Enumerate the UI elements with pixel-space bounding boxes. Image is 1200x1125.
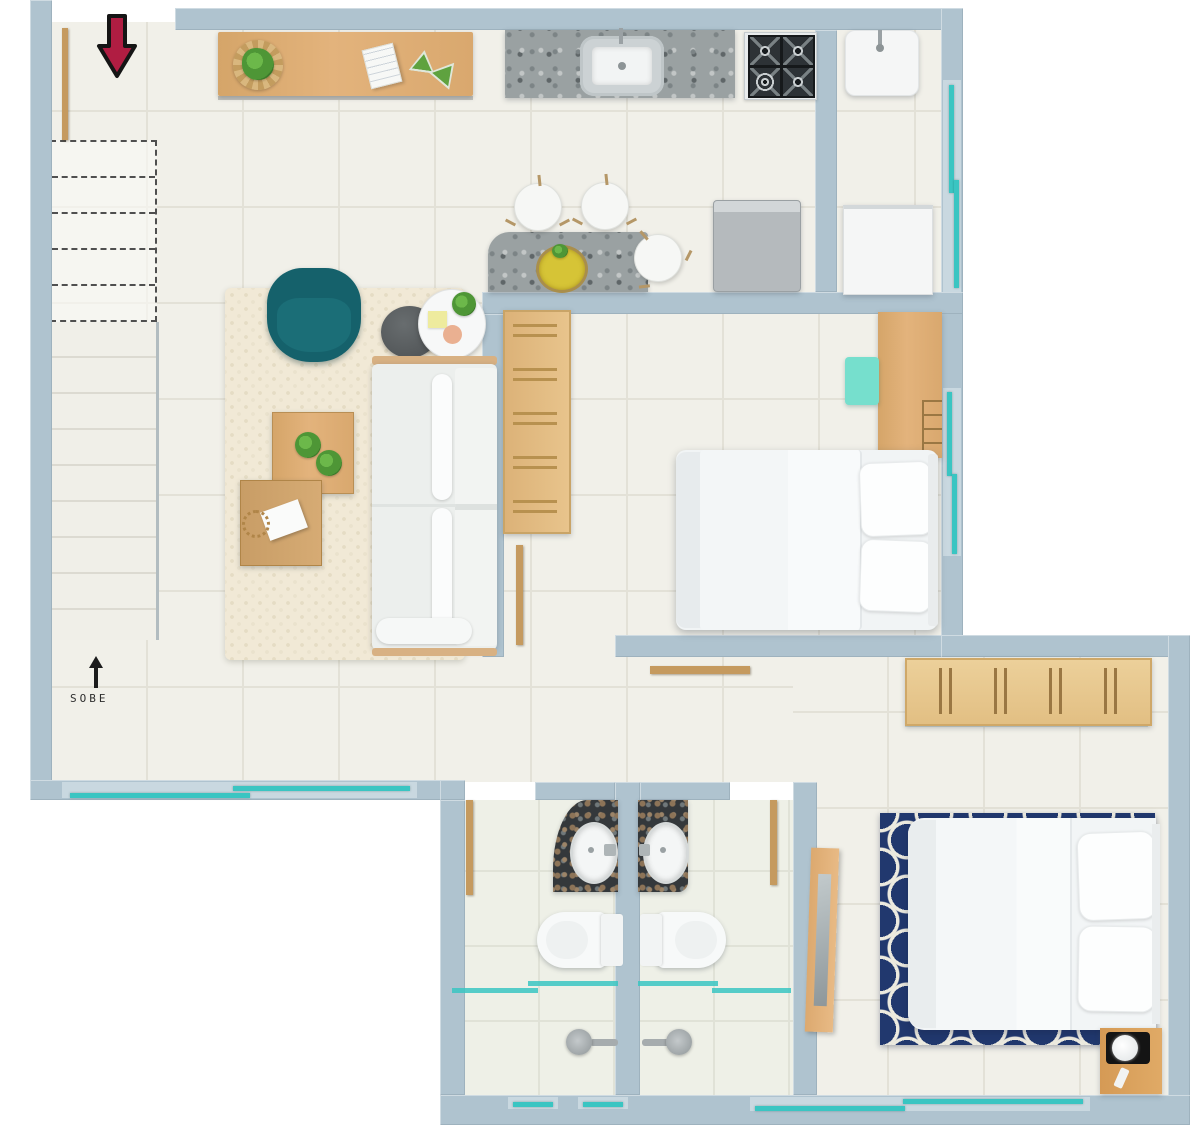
kitchen-sink — [580, 36, 664, 96]
window-living-2 — [70, 793, 250, 798]
window-bedroom1-2 — [952, 474, 957, 554]
bedroom1-door-leaf — [516, 545, 523, 645]
remote — [1113, 1067, 1129, 1089]
lamp — [1112, 1035, 1138, 1061]
sticky-note — [428, 311, 447, 328]
wall-bath2-top — [640, 782, 730, 800]
bed1-headboard — [928, 454, 938, 626]
coffee-plant-2 — [316, 450, 342, 476]
burner — [748, 35, 782, 67]
washing-machine — [843, 205, 933, 295]
window-laundry — [949, 85, 954, 193]
sink-drain — [618, 62, 626, 70]
burner — [748, 66, 782, 98]
stairs-up-label: SOBE — [70, 692, 109, 705]
bath2-vanity — [638, 800, 688, 892]
bathroom2-door-leaf — [770, 800, 777, 885]
rack-slats — [513, 324, 557, 518]
bath1-shower-arm — [590, 1039, 618, 1046]
slatted-rack — [503, 310, 571, 534]
bath2-shower-arm — [642, 1039, 669, 1046]
wall-left — [30, 0, 52, 800]
bowl-greens — [552, 244, 568, 258]
sofa-wood-trim-bottom — [372, 648, 497, 656]
side-table-plant — [452, 292, 476, 316]
toilet-tank — [640, 914, 662, 966]
bed1-pillow-2 — [859, 539, 933, 613]
bath2-toilet — [640, 912, 726, 968]
wall-bath-top-corner — [440, 780, 465, 800]
desk-cube-shelves — [922, 400, 942, 456]
window-bedroom2 — [903, 1099, 1083, 1104]
window-bedroom2-2 — [755, 1106, 905, 1111]
bath1-shower-glass-2 — [452, 988, 538, 993]
stairs-upper-flight-dashed — [50, 140, 157, 322]
bath1-toilet — [537, 912, 623, 968]
bath2-shower-head — [666, 1029, 692, 1055]
armchair — [267, 268, 361, 362]
bed2-pillow-2 — [1077, 925, 1156, 1012]
fruit-bowl — [536, 245, 588, 293]
bed2-foot-roll — [908, 820, 938, 1028]
bed2-duvet — [936, 818, 1072, 1030]
refrigerator — [713, 200, 801, 292]
plant-leaves — [242, 48, 274, 80]
dining-chair-1 — [514, 183, 562, 231]
wardrobe — [905, 658, 1152, 726]
burner — [781, 66, 815, 98]
desk-chair — [845, 357, 879, 405]
coffee-plant-1 — [295, 432, 321, 458]
sofa — [372, 356, 497, 656]
wall-kitchen-laundry — [815, 30, 837, 292]
kitchen-faucet — [619, 28, 623, 44]
stair-tread-line — [52, 176, 155, 178]
toilet-tank — [601, 914, 623, 966]
window-bath1 — [513, 1102, 553, 1107]
window-bath2 — [583, 1102, 623, 1107]
bath1-drain — [588, 847, 594, 853]
bath2-shower-glass-2 — [712, 988, 791, 993]
basket-plant — [233, 40, 283, 90]
bed1-foot-roll — [676, 452, 702, 628]
bed-2 — [908, 818, 1160, 1030]
entry-arrow-icon — [95, 12, 139, 82]
dining-chair-2 — [581, 182, 629, 230]
peach-dish — [443, 325, 462, 344]
sofa-bolster-1 — [432, 374, 452, 500]
bath1-shower-head — [566, 1029, 592, 1055]
bath2-drain — [660, 847, 666, 853]
wall-top — [175, 8, 963, 30]
bath1-shower-glass — [528, 981, 618, 986]
bed1-pillow-1 — [859, 461, 934, 537]
floor-plan: SOBE — [0, 0, 1200, 1125]
toilet-seat — [675, 921, 717, 959]
sideboard-shadow — [218, 96, 473, 100]
wall-bath1-top — [535, 782, 615, 800]
stair-tread-line — [52, 248, 155, 250]
stair-tread-line — [52, 284, 155, 286]
window-laundry-2 — [954, 180, 959, 288]
sofa-bolster-2 — [432, 508, 452, 634]
bath2-faucet — [639, 844, 650, 856]
bed1-duvet — [700, 450, 862, 630]
bed2-pillow-1 — [1076, 831, 1157, 922]
hallway-door-leaf — [650, 666, 750, 674]
laundry-tank — [845, 30, 919, 96]
wall-bedroom2-top — [941, 635, 1190, 657]
wall-bedroom2-right — [1168, 635, 1190, 1125]
wall-bedroom1-bottom — [615, 635, 963, 657]
bed2-headboard — [1152, 824, 1160, 1024]
sofa-backrest — [455, 368, 497, 646]
window-bedroom1 — [947, 392, 952, 476]
armchair-seat — [277, 298, 351, 352]
mirror-glass — [814, 874, 832, 1006]
bathroom1-door-leaf — [466, 800, 473, 895]
sofa-seat-split — [372, 504, 456, 507]
stair-tread-line — [52, 212, 155, 214]
bath2-shower-glass — [638, 981, 718, 986]
bath1-faucet — [604, 844, 616, 856]
stairs-up-arrow-stem — [94, 666, 98, 688]
sofa-front-cushion — [376, 618, 472, 644]
entry-door-leaf — [62, 28, 68, 140]
nightstand — [1100, 1028, 1162, 1094]
wall-bath1-left — [440, 800, 465, 1095]
stairs-lower-flight — [52, 322, 159, 640]
wardrobe-handles — [919, 668, 1134, 714]
desk — [878, 312, 942, 458]
toilet-seat — [546, 921, 588, 959]
wood-trinket — [242, 510, 270, 538]
window-living — [233, 786, 410, 791]
bed-1 — [676, 450, 938, 630]
stove — [744, 32, 817, 100]
burner — [781, 35, 815, 67]
laundry-faucet-knob — [876, 44, 884, 52]
